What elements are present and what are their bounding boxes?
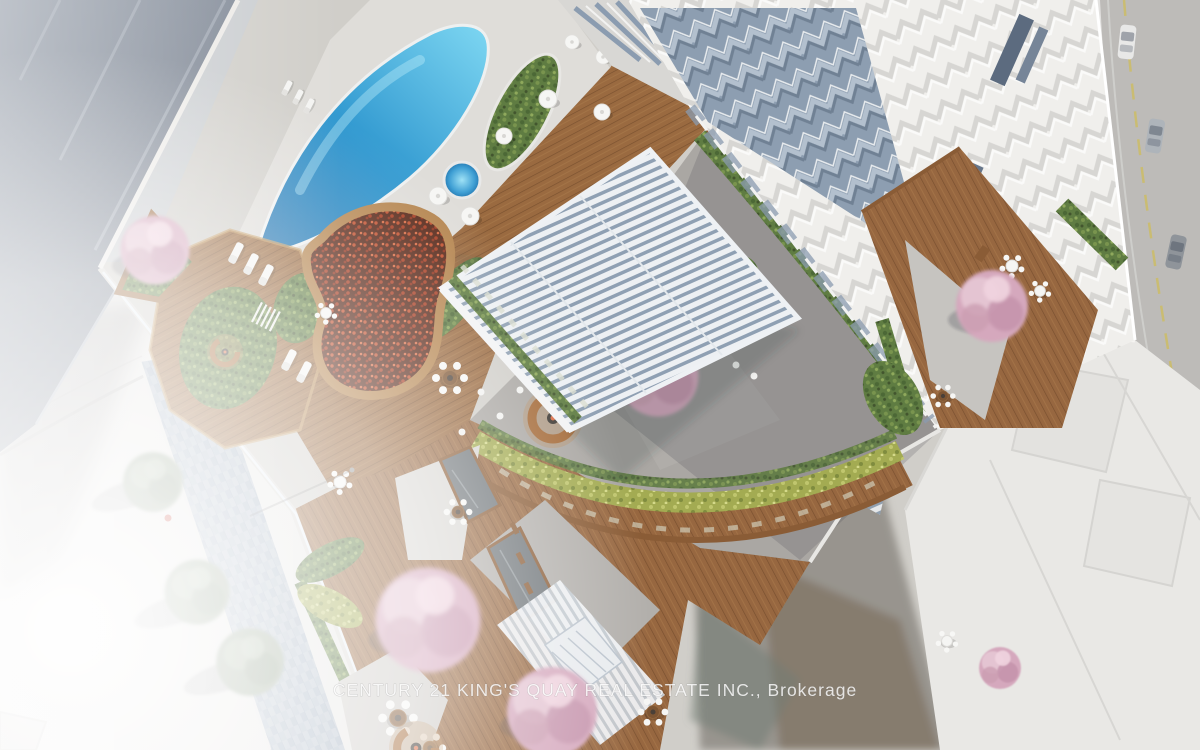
watermark-text: CENTURY 21 KING'S QUAY REAL ESTATE INC.,… <box>333 680 857 700</box>
scene-svg: CENTURY 21 KING'S QUAY REAL ESTATE INC.,… <box>0 0 1200 750</box>
light-fade <box>0 0 620 750</box>
aerial-rendering: CENTURY 21 KING'S QUAY REAL ESTATE INC.,… <box>0 0 1200 750</box>
